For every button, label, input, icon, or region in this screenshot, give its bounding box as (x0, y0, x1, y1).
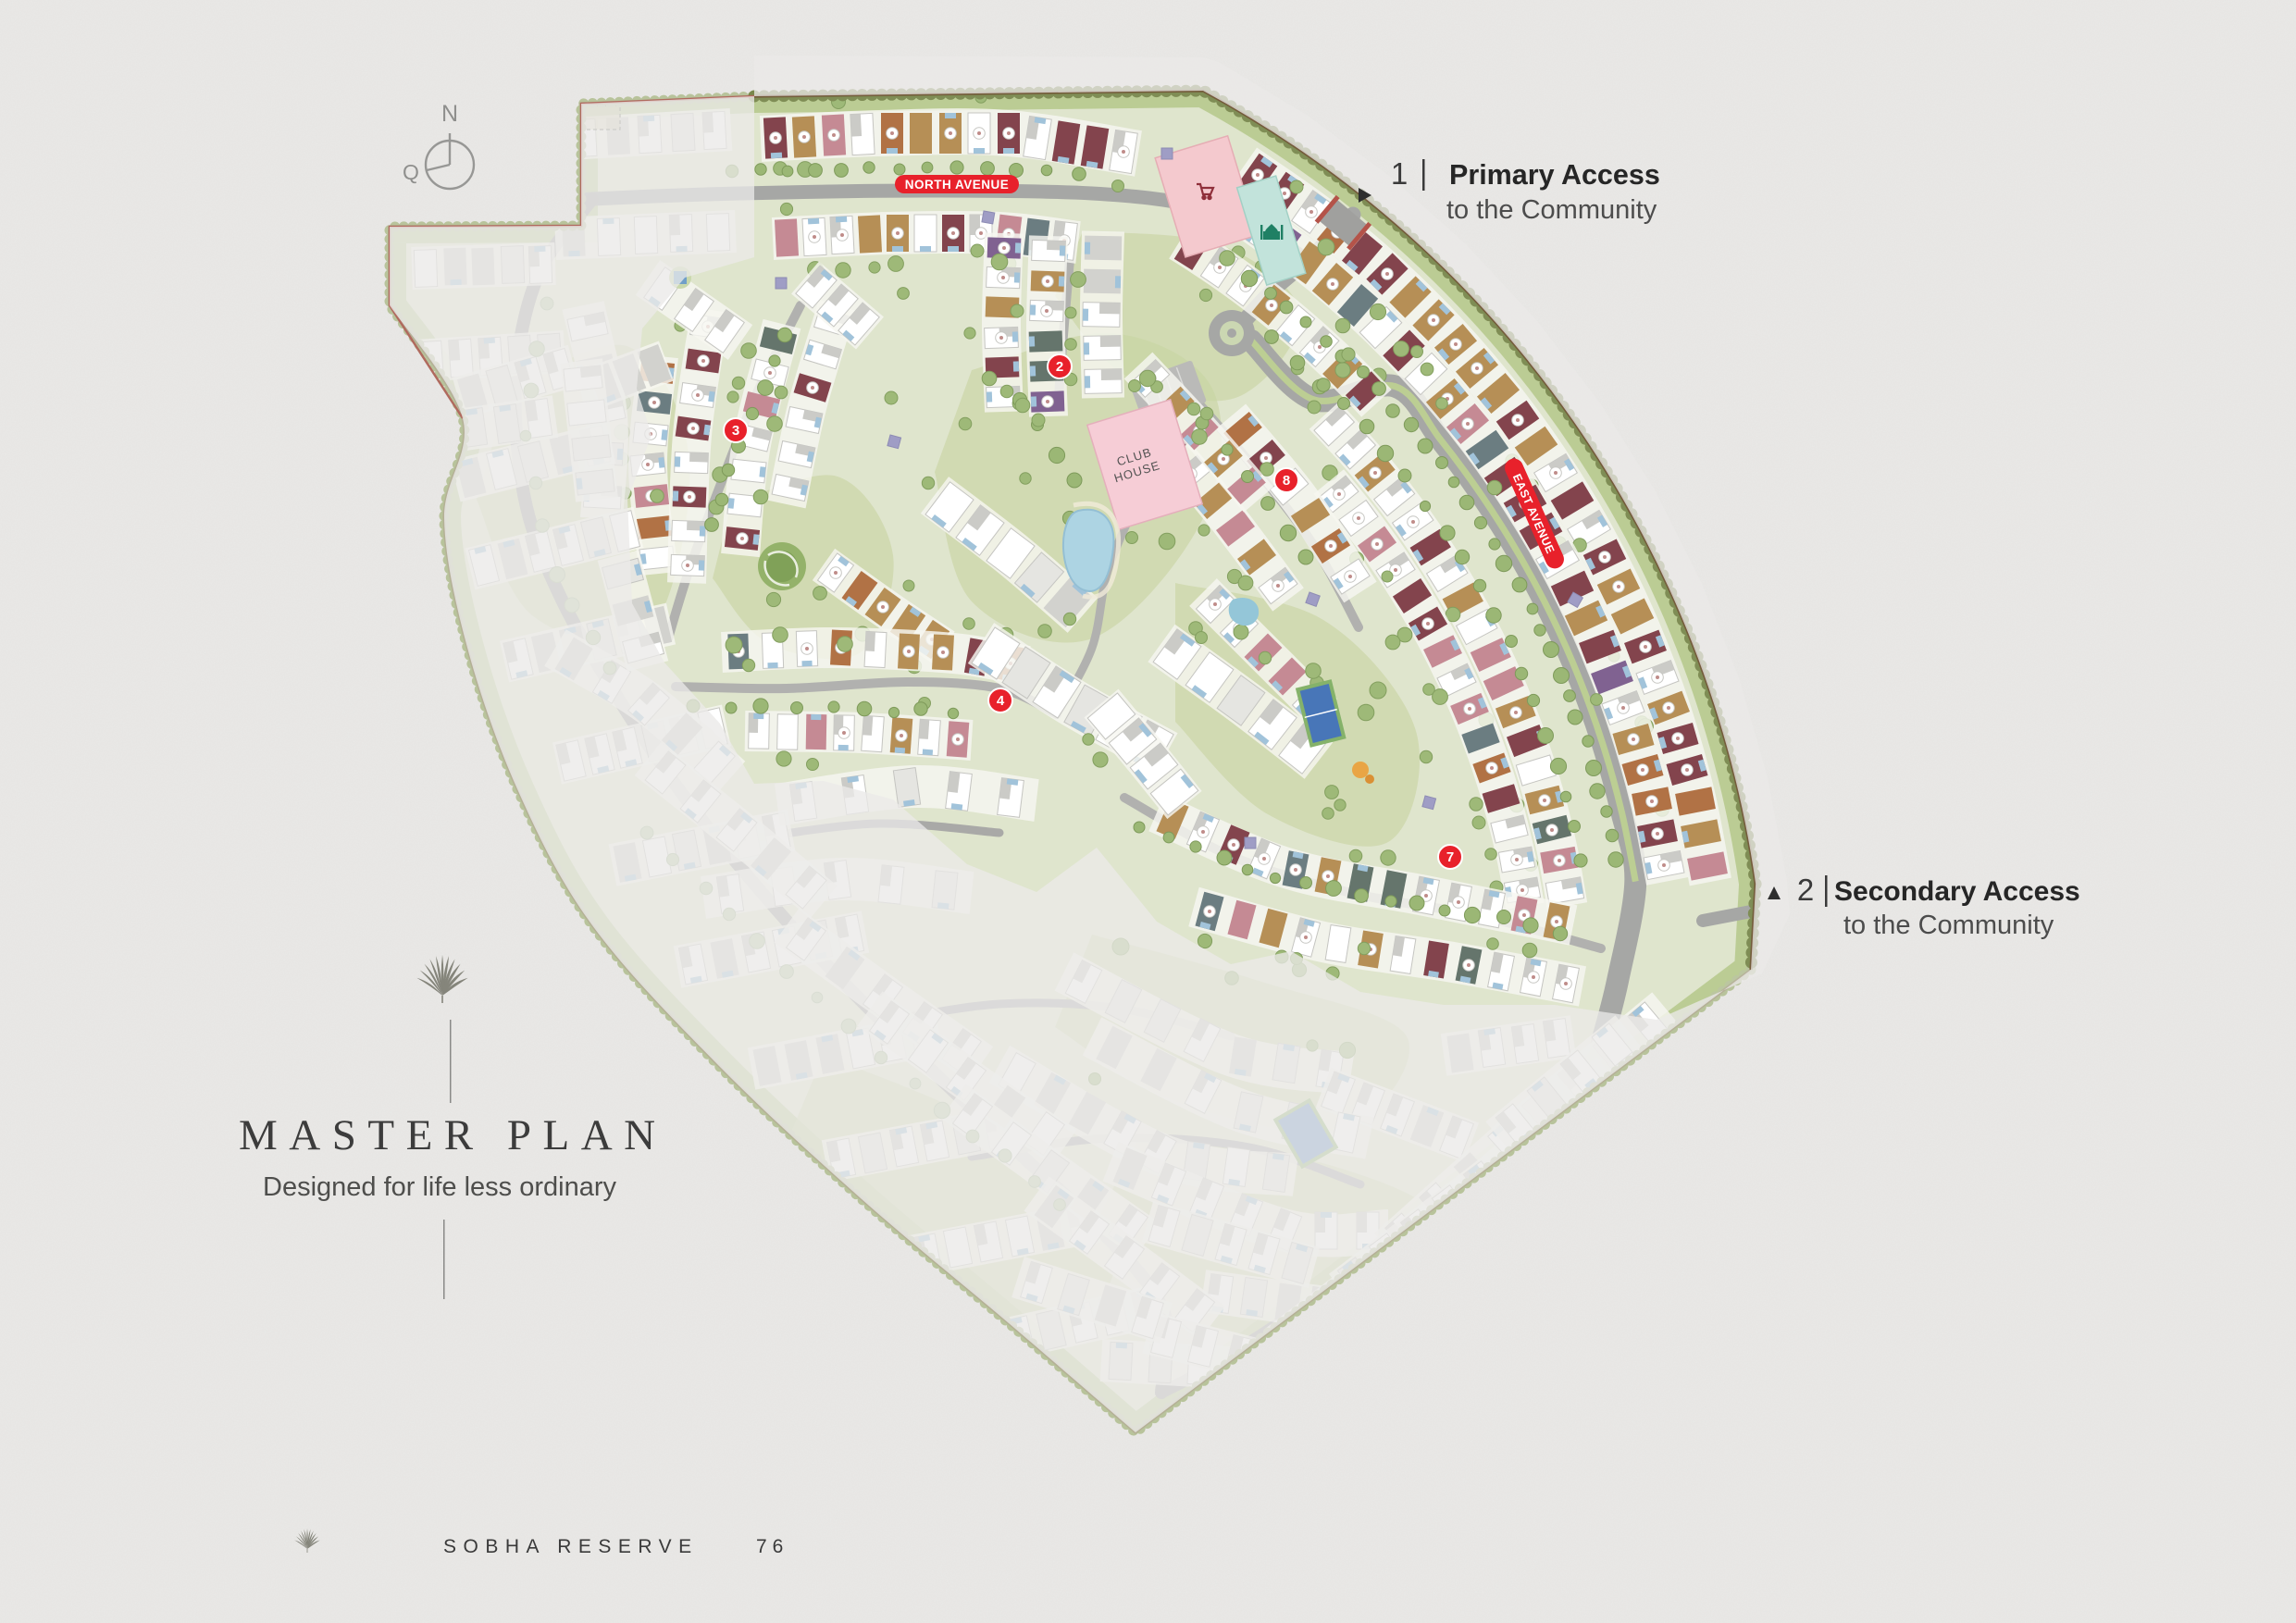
svg-text:Secondary Access: Secondary Access (1834, 876, 2080, 907)
svg-text:8: 8 (1283, 473, 1290, 489)
svg-text:to the Community: to the Community (1446, 195, 1657, 225)
svg-text:SOBHA RESERVE: SOBHA RESERVE (443, 1536, 699, 1557)
svg-text:4: 4 (997, 693, 1005, 709)
svg-text:MASTER PLAN: MASTER PLAN (239, 1111, 667, 1159)
svg-text:NORTH AVENUE: NORTH AVENUE (905, 178, 1010, 192)
svg-text:1: 1 (1391, 156, 1408, 191)
svg-text:7: 7 (1446, 849, 1454, 865)
svg-text:76: 76 (756, 1536, 788, 1557)
svg-text:N: N (441, 101, 458, 127)
svg-text:Designed for life less ordinar: Designed for life less ordinary (263, 1172, 617, 1202)
svg-text:Q: Q (403, 160, 419, 184)
svg-text:3: 3 (732, 423, 739, 439)
svg-text:2: 2 (1797, 873, 1814, 907)
svg-text:2: 2 (1056, 359, 1063, 375)
svg-text:to the Community: to the Community (1843, 911, 2054, 940)
svg-text:Primary Access: Primary Access (1449, 159, 1660, 191)
